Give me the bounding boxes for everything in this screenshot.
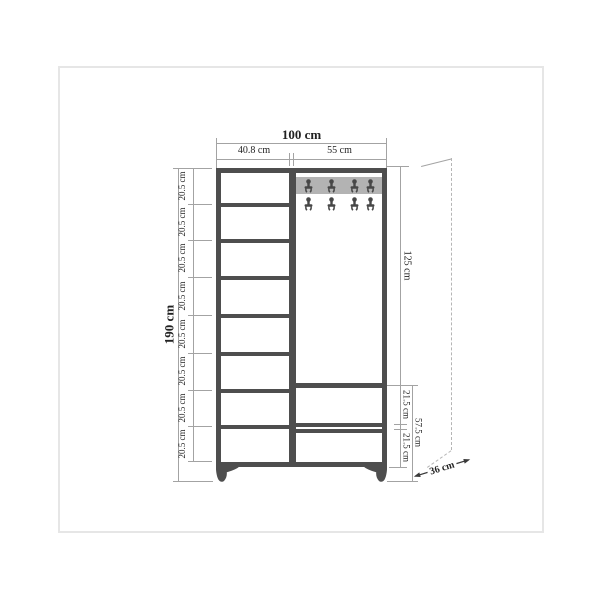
- segment-tick: [188, 240, 212, 241]
- dim-label-right-section-width: 55 cm: [292, 146, 387, 156]
- coat-hook-icon: [349, 179, 360, 194]
- coat-hook-icon: [365, 179, 376, 194]
- arrow-right-icon: [455, 455, 472, 469]
- shelf-line: [221, 314, 289, 318]
- right-foot: [363, 466, 387, 482]
- segment-tick: [188, 461, 212, 462]
- dim-label-shelf-segment: 20.5 cm: [178, 276, 188, 316]
- shelf-line: [221, 352, 289, 356]
- dim-label-shelf-segment: 20.5 cm: [178, 202, 188, 242]
- coat-hook-icon: [349, 197, 360, 212]
- dim-line-total-width: [216, 143, 387, 144]
- coat-hook-icon: [326, 197, 337, 212]
- left-foot: [216, 466, 240, 482]
- dim-line-sub-widths: [216, 159, 387, 160]
- shelf-line: [221, 203, 289, 207]
- arrow-left-icon: [412, 467, 429, 481]
- depth-back-edge-dashed: [451, 158, 452, 450]
- bracket-foot-icon: [216, 466, 240, 482]
- dim-label-shelf-segment: 20.5 cm: [178, 314, 188, 354]
- shelf-line: [221, 239, 289, 243]
- drawer-section-top-edge: [296, 383, 382, 388]
- dim-label-shelf-segment: 20.5 cm: [178, 166, 188, 206]
- dim-label-total-height: 190 cm: [163, 300, 176, 350]
- dim-label-bottom-section: 57.5 cm: [412, 412, 423, 454]
- shelf-line: [221, 389, 289, 393]
- cabinet-right-side: [382, 168, 387, 467]
- coat-hook-icon: [365, 197, 376, 212]
- segment-tick: [188, 353, 212, 354]
- segment-tick: [188, 315, 212, 316]
- drawer-1-bottom-edge: [296, 423, 382, 427]
- coat-hook-icon: [326, 179, 337, 194]
- segment-tick: [188, 390, 212, 391]
- shelf-line: [221, 425, 289, 429]
- diagram-canvas: 100 cm 40.8 cm 55 cm 20.5 cm20.5 cm20.5 …: [0, 0, 600, 600]
- cabinet-center-divider: [289, 168, 296, 467]
- coat-hook-icon: [303, 197, 314, 212]
- dim-label-open-height: 125 cm: [401, 244, 412, 288]
- cabinet-top-edge: [216, 168, 387, 173]
- bracket-foot-icon: [363, 466, 387, 482]
- segment-tick: [188, 168, 212, 169]
- segment-tick: [188, 277, 212, 278]
- ext-line-left-bottom: [173, 481, 213, 482]
- cabinet-bottom-edge: [216, 462, 387, 467]
- segment-tick: [188, 426, 212, 427]
- dim-label-drawer-1: 21.5 cm: [400, 384, 411, 426]
- dim-label-drawer-2: 21.5 cm: [400, 427, 411, 469]
- dim-label-shelf-segment: 20.5 cm: [178, 424, 188, 464]
- drawer-2-top-edge: [296, 429, 382, 433]
- dim-label-shelf-segment: 20.5 cm: [178, 351, 188, 391]
- dim-label-shelf-segment: 20.5 cm: [178, 238, 188, 278]
- dim-label-left-column-width: 40.8 cm: [216, 146, 292, 156]
- shelf-line: [221, 276, 289, 280]
- ext-line-right-top: [387, 166, 409, 167]
- dim-label-total-width: 100 cm: [216, 128, 387, 141]
- segment-tick: [188, 204, 212, 205]
- coat-hook-icon: [303, 179, 314, 194]
- dim-label-shelf-segment: 20.5 cm: [178, 388, 188, 428]
